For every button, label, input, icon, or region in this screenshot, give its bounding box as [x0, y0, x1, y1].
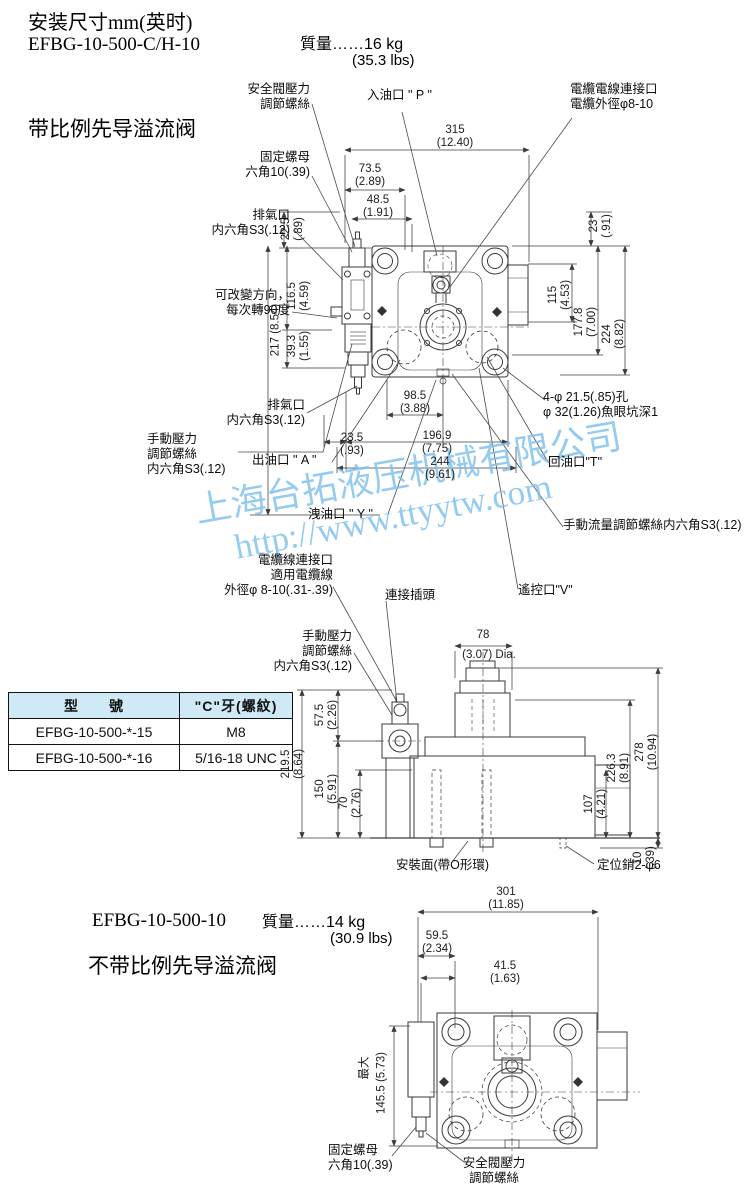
- label-cable-connection-top: 電纜電線連接口 電纜外徑φ8-10: [570, 82, 658, 112]
- dim-48-5: 48.5 (1.91): [363, 194, 393, 220]
- valve-name-2: 不带比例先导溢流阀: [88, 950, 277, 980]
- dim-244: 244 (9.61): [425, 456, 455, 482]
- model-number-2: EFBG-10-500-10: [92, 910, 226, 932]
- dim-23-5: 23.5 (.93): [340, 432, 364, 458]
- label-safety-valve-screw-2: 安全閥壓力 調節螺絲: [452, 1156, 536, 1186]
- label-flow-adjust-screw: 手動流量調節螺絲内六角S3(.12): [563, 518, 742, 533]
- label-remote-port-v: 遙控口"V": [518, 583, 573, 598]
- label-cable-connection-bottom: 電纜線連接口 適用電纜線 外徑φ 8-10(.31-.39): [207, 553, 333, 598]
- label-drain-port-y: 洩油口 " Y ": [308, 507, 373, 522]
- valve-name-1: 带比例先导溢流阀: [28, 113, 196, 143]
- label-manual-pressure-screw: 手動壓力 調節螺絲 内六角S3(.12): [147, 432, 226, 477]
- dim-73-5: 73.5 (2.89): [355, 163, 385, 189]
- label-manual-pressure-screw-2: 手動壓力 調節螺絲 内六角S3(.12): [262, 629, 352, 674]
- label-connector-plug: 連接插頭: [385, 588, 435, 603]
- label-return-port-t: 回油口"T": [548, 455, 602, 470]
- label-mounting-face: 安裝面(帶O形環): [396, 858, 489, 873]
- label-lock-nut-2: 固定螺母 六角10(.39): [328, 1143, 393, 1173]
- label-air-vent-top: 排氣口 内六角S3(.12): [175, 208, 290, 238]
- table-row: EFBG-10-500-*-15 M8: [9, 719, 293, 745]
- table-row: EFBG-10-500-*-16 5/16-18 UNC: [9, 745, 293, 771]
- dim-315: 315 (12.40): [437, 124, 473, 150]
- weight-label: 質量……16 kg: [300, 30, 403, 54]
- dim-98-5: 98.5 (3.88): [400, 390, 430, 416]
- cell-model-2: EFBG-10-500-*-16: [9, 745, 180, 771]
- label-air-vent-bottom: 排氣口 内六角S3(.12): [197, 398, 305, 428]
- page-title: 安装尺寸mm(英时): [28, 6, 192, 35]
- drawing-page: 安装尺寸mm(英时) EFBG-10-500-C/H-10 質量……16 kg …: [0, 0, 750, 1197]
- label-safety-valve-screw: 安全閥壓力 調節螺絲: [205, 82, 310, 112]
- cell-model-1: EFBG-10-500-*-15: [9, 719, 180, 745]
- cell-thread-1: M8: [180, 719, 293, 745]
- table-header-thread: "C"牙(螺紋): [180, 693, 293, 719]
- label-lock-nut: 固定螺母 六角10(.39): [215, 150, 310, 180]
- dim-196-9: 196.9 (7.75): [422, 430, 452, 456]
- model-number: EFBG-10-500-C/H-10: [28, 34, 200, 56]
- label-locating-pin: 定位銷2-φ6: [597, 858, 661, 873]
- weight-lbs-2: (30.9 lbs): [330, 930, 393, 947]
- label-mounting-holes: 4-φ 21.5(.85)孔 φ 32(1.26)魚眼坑深1: [543, 390, 658, 420]
- dim-41-5: 41.5 (1.63): [490, 960, 520, 986]
- table-header-model: 型 號: [9, 693, 180, 719]
- dim-59-5: 59.5 (2.34): [422, 930, 452, 956]
- label-outlet-port-a: 出油口 " A ": [252, 453, 316, 468]
- dim-78-inch: (3.07) Dia.: [462, 649, 516, 662]
- dim-78: 78: [477, 629, 490, 642]
- dim-301: 301 (11.85): [488, 886, 524, 912]
- thread-spec-table: 型 號 "C"牙(螺紋) EFBG-10-500-*-15 M8 EFBG-10…: [8, 692, 293, 771]
- cell-thread-2: 5/16-18 UNC: [180, 745, 293, 771]
- label-inlet-port-p: 入油口 " P ": [367, 88, 432, 103]
- weight-label-2: 質量……14 kg: [262, 908, 365, 932]
- weight-lbs: (35.3 lbs): [352, 52, 415, 69]
